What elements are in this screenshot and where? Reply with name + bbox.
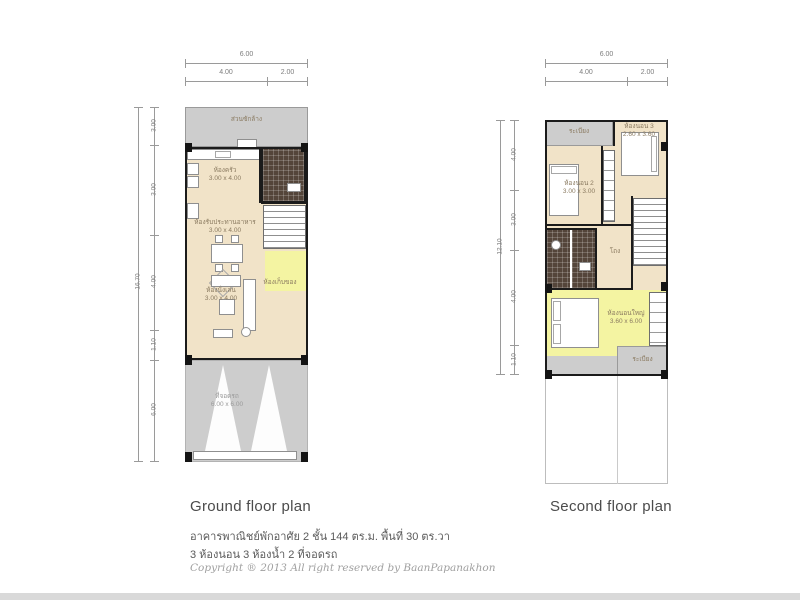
column-post [301,143,308,152]
dim-tick [150,461,159,462]
ground-dim-seg1: 4.00 [185,69,267,76]
dim-tick [267,77,268,86]
ground-left-seg3: 4.00 [151,268,158,296]
floor-plan-sheet: 6.00 4.00 2.00 16.70 3.00 3.00 4.00 1.10… [0,0,800,600]
dim-tick [150,107,159,108]
ground-left-seg5: 6.00 [151,396,158,424]
dim-tick [150,360,159,361]
garage-gate [193,451,297,460]
void-divider [617,376,618,484]
dim-tick [667,59,668,68]
dim-tick [667,77,668,86]
second-left-seg4: 1.10 [511,346,518,374]
ground-dim-total-width: 6.00 [185,51,308,58]
dim-tick [496,120,505,121]
ground-caption: Ground floor plan [190,498,311,515]
dim-tick [307,59,308,68]
column-post [545,370,552,379]
ground-dim-seg-line [185,81,308,82]
dim-tick [496,374,505,375]
garage-size: 6.00 x 6.00 [197,401,257,409]
dim-tick [545,77,546,86]
description-line2: 3 ห้องนอน 3 ห้องน้ำ 2 ที่จอดรถ [190,545,337,563]
column-post [185,143,192,152]
second-dim-total-line [545,63,668,64]
ground-dim-seg2: 2.00 [267,69,308,76]
dim-tick [134,107,143,108]
garage-label: ที่จอดรถ 6.00 x 6.00 [197,393,257,410]
copyright-line: Copyright ® 2013 All right reserved by B… [190,562,496,574]
second-left-seg2: 3.00 [511,206,518,234]
column-post [661,370,668,379]
void-below [545,376,668,484]
garage-area [185,360,308,462]
dim-tick [185,59,186,68]
exterior-walls-ground [185,147,308,360]
dim-tick [150,145,159,146]
column-post [185,355,192,365]
dim-tick [627,77,628,86]
dim-tick [510,120,519,121]
column-post [301,452,308,462]
column-post [661,142,668,151]
second-dim-total-width: 6.00 [545,51,668,58]
dim-tick [510,250,519,251]
exterior-walls-second [545,120,668,376]
second-caption: Second floor plan [550,498,672,515]
ground-left-seg2: 3.00 [151,176,158,204]
ground-left-total: 16.70 [135,268,142,296]
dim-tick [185,77,186,86]
dim-tick [134,461,143,462]
dim-tick [545,59,546,68]
column-post [301,355,308,365]
second-dim-seg2: 2.00 [627,69,668,76]
dim-tick [307,77,308,86]
ground-left-seg1: 3.00 [151,112,158,140]
page-bottom-edge [0,593,800,600]
second-dim-seg1: 4.00 [545,69,627,76]
second-left-total: 12.10 [497,233,504,261]
ground-floor-plan: ส่วนซักล้าง ห้องเก็บของ ห้องครัว 3.00 x … [185,107,308,462]
second-floor-plan: ระเบียง ห้องนอน 3 2.60 x 3.60 ห้องนอน 2 … [545,120,668,485]
column-post [185,452,192,462]
dim-tick [510,190,519,191]
second-dim-seg-line [545,81,668,82]
column-post [661,282,668,291]
dim-tick [150,235,159,236]
column-post [545,284,552,293]
description-line1: อาคารพาณิชย์พักอาศัย 2 ชั้น 144 ตร.ม. พื… [190,527,450,545]
ground-left-seg4: 1.10 [151,331,158,359]
garage-name: ที่จอดรถ [197,393,257,401]
dim-tick [510,374,519,375]
second-left-seg1: 4.00 [511,141,518,169]
laundry-label: ส่วนซักล้าง [185,116,308,124]
ground-dim-total-line [185,63,308,64]
second-left-seg3: 4.00 [511,283,518,311]
